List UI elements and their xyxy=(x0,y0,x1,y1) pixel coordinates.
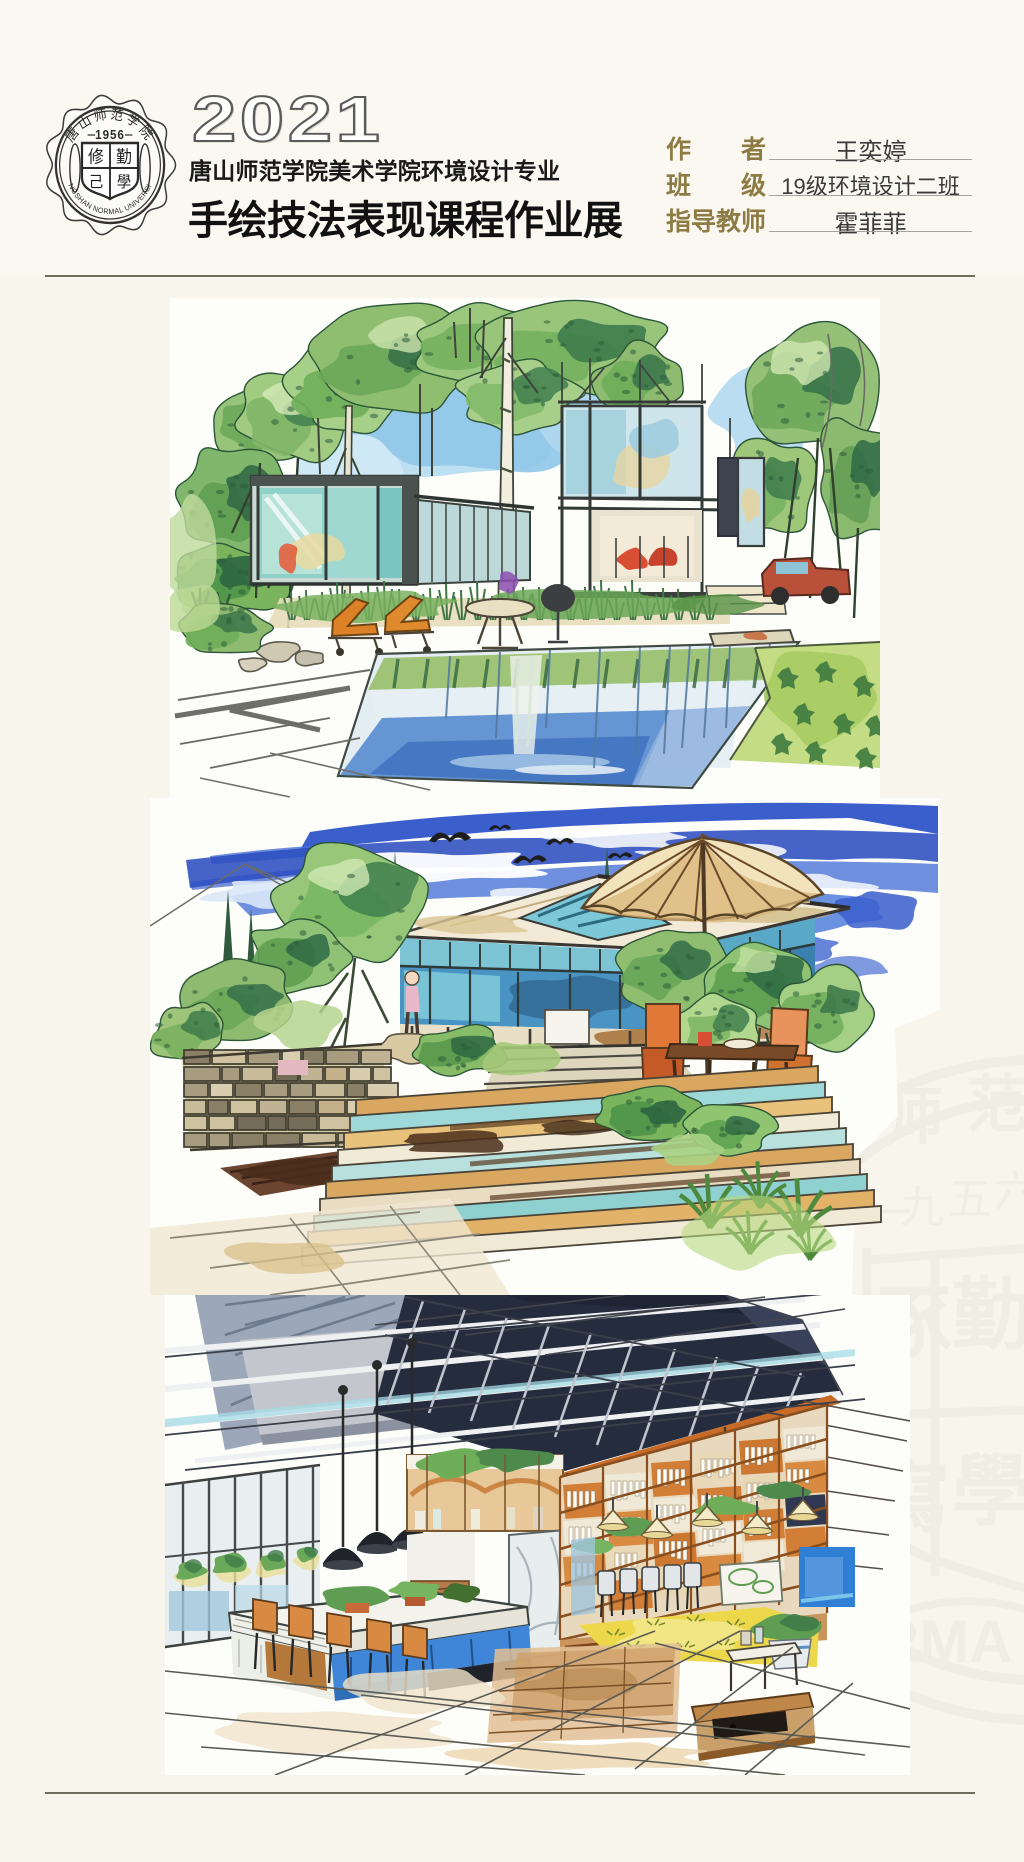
svg-text:己: 己 xyxy=(89,175,103,192)
svg-text:1956: 1956 xyxy=(95,128,125,142)
svg-text:學: 學 xyxy=(117,173,131,192)
svg-text:學: 學 xyxy=(952,1448,1024,1535)
svg-text:范: 范 xyxy=(966,1072,1024,1140)
svg-text:六: 六 xyxy=(994,1167,1024,1216)
svg-text:勤: 勤 xyxy=(952,1272,1024,1359)
svg-text:五: 五 xyxy=(948,1175,992,1224)
svg-text:修: 修 xyxy=(88,147,104,167)
svg-text:勤: 勤 xyxy=(116,147,132,167)
